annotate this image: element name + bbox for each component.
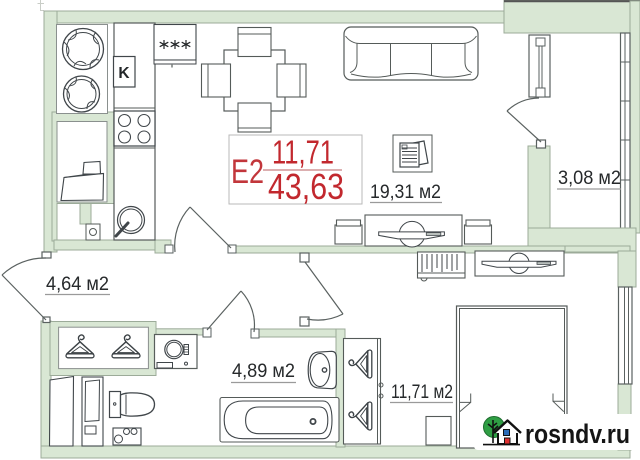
svg-text:11,71 м2: 11,71 м2 — [391, 381, 453, 403]
svg-text:4,64 м2: 4,64 м2 — [46, 273, 109, 295]
svg-text:11,71: 11,71 — [272, 134, 334, 171]
svg-text:rosndv.ru: rosndv.ru — [525, 419, 630, 449]
svg-text:E2: E2 — [231, 153, 264, 191]
svg-text:3,08 м2: 3,08 м2 — [558, 167, 621, 189]
svg-text:43,63: 43,63 — [268, 166, 344, 207]
svg-text:K: K — [118, 65, 130, 82]
svg-text:4,89 м2: 4,89 м2 — [232, 360, 295, 382]
svg-text:19,31 м2: 19,31 м2 — [370, 181, 441, 203]
